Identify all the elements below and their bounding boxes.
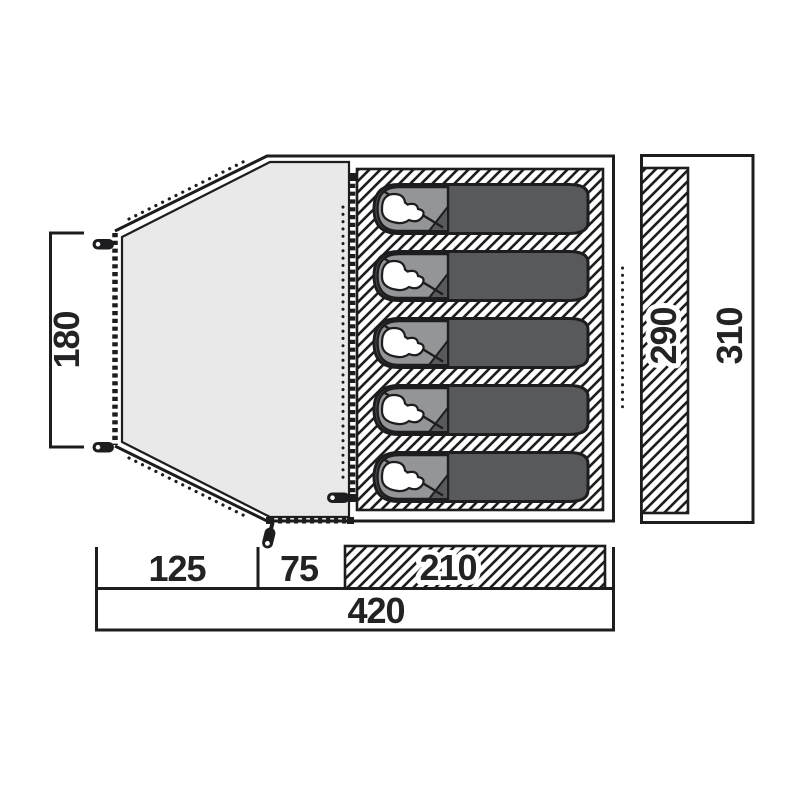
peg-icon [93,239,115,250]
sleeping-bag [374,386,588,435]
dimension-label-180: 180 [46,311,87,368]
bottom-dimension-scale: 125 75 210 420 [95,546,615,631]
floorplan-svg: 180 125 75 210 420 290 310 [0,0,800,800]
peg-icon [93,442,115,453]
dimension-label-310: 310 [709,307,750,364]
zipper-pull-icon [261,522,278,550]
dimension-label-420: 420 [347,590,404,631]
dimension-label-290: 290 [643,307,684,364]
tent-dimensions-diagram: 180 125 75 210 420 290 310 [0,0,800,800]
sleeping-cabin [343,169,603,510]
sleeping-bag [374,453,588,502]
zipper-end-dot [347,517,354,524]
porch-area [122,162,354,550]
sleeping-bag [374,252,588,301]
dimension-door-height: 180 [46,233,87,447]
dimension-label-75: 75 [280,548,319,589]
sleeping-bag [374,319,588,368]
zipper-end-dot [349,173,357,181]
side-width-figure: 290 310 [642,156,754,523]
sleeping-bag [374,185,588,234]
dimension-label-125: 125 [148,548,206,589]
peg-icon [327,493,350,504]
dimension-label-210: 210 [419,547,476,588]
zipper-end-dot [349,494,357,502]
